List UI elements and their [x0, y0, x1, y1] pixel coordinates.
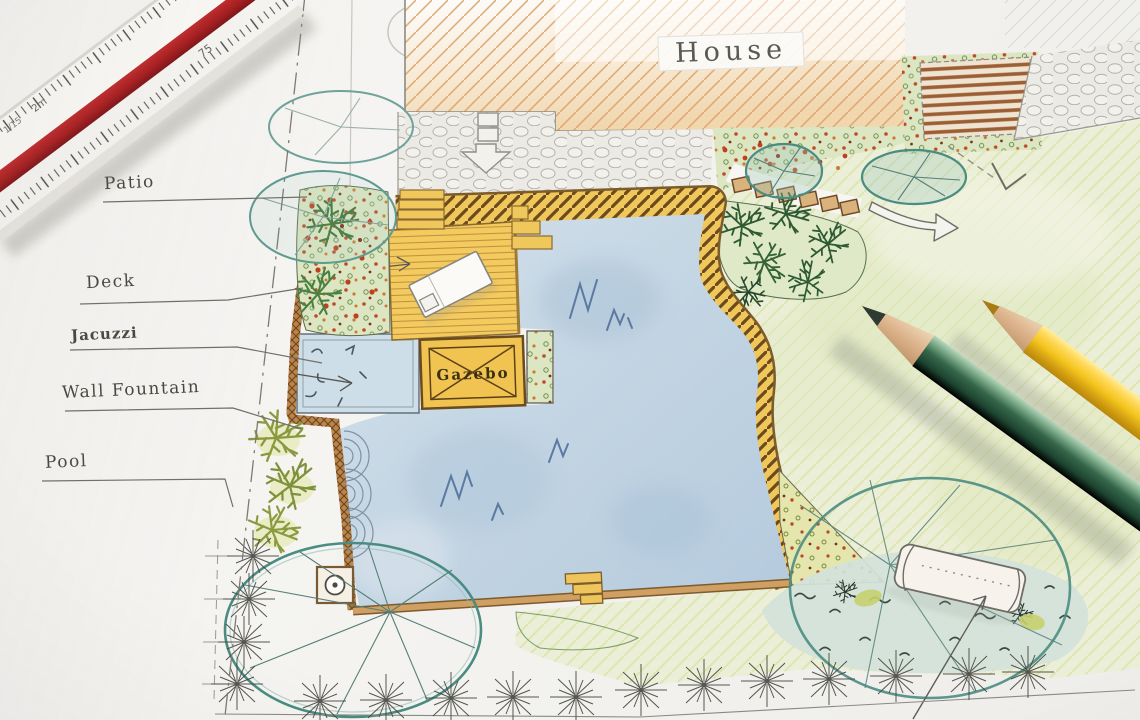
house-label: House [657, 31, 804, 71]
pool-label: Pool [45, 451, 88, 473]
jacuzzi-area [296, 334, 419, 413]
faint-floor-hatch [1005, 0, 1140, 48]
planting-strip [527, 331, 553, 403]
patio-label: Patio [104, 172, 156, 194]
deck-label: Deck [86, 271, 136, 293]
tree-canopy-topleft [250, 91, 413, 263]
wall-ferns [239, 405, 322, 563]
jacuzzi-label: Jacuzzi [71, 324, 138, 345]
deck-stairs [397, 190, 444, 229]
photo-of-landscape-plan: Patio Deck Jacuzzi Wall Fountain Pool Ho… [0, 0, 1140, 720]
pool-corner-light [317, 567, 353, 603]
house-footprint [405, 0, 905, 131]
plan-artwork [0, 0, 1140, 720]
pencil-guide-line [350, 0, 352, 190]
gazebo-label: Gazebo [427, 363, 520, 384]
